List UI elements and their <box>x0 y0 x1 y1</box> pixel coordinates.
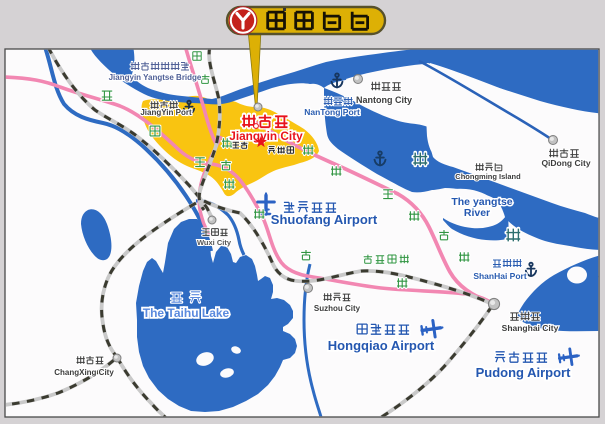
svg-text:Suzhou City: Suzhou City <box>314 304 361 313</box>
svg-text:Nantong City: Nantong City <box>356 95 412 105</box>
svg-text:NanTong Port: NanTong Port <box>304 107 360 117</box>
svg-text:ShanHai Port: ShanHai Port <box>473 271 527 281</box>
svg-text:Jiangyin City: Jiangyin City <box>229 129 303 143</box>
svg-text:Wuxi City: Wuxi City <box>197 238 232 247</box>
svg-text:JiangYin Port: JiangYin Port <box>140 108 192 117</box>
svg-text:ChangXing City: ChangXing City <box>54 368 114 377</box>
svg-text:Shanghai City: Shanghai City <box>502 323 559 333</box>
svg-text:Shuofang Airport: Shuofang Airport <box>271 212 378 227</box>
svg-text:Chongming Island: Chongming Island <box>455 172 521 181</box>
svg-text:Pudong Airport: Pudong Airport <box>476 365 572 380</box>
svg-text:Jiangyin Yangtse Bridge: Jiangyin Yangtse Bridge <box>109 73 202 82</box>
svg-text:River: River <box>464 207 490 219</box>
svg-text:QiDong City: QiDong City <box>541 158 590 168</box>
svg-text:The Taihu Lake: The Taihu Lake <box>143 306 230 320</box>
svg-text:Hongqiao Airport: Hongqiao Airport <box>328 338 435 353</box>
